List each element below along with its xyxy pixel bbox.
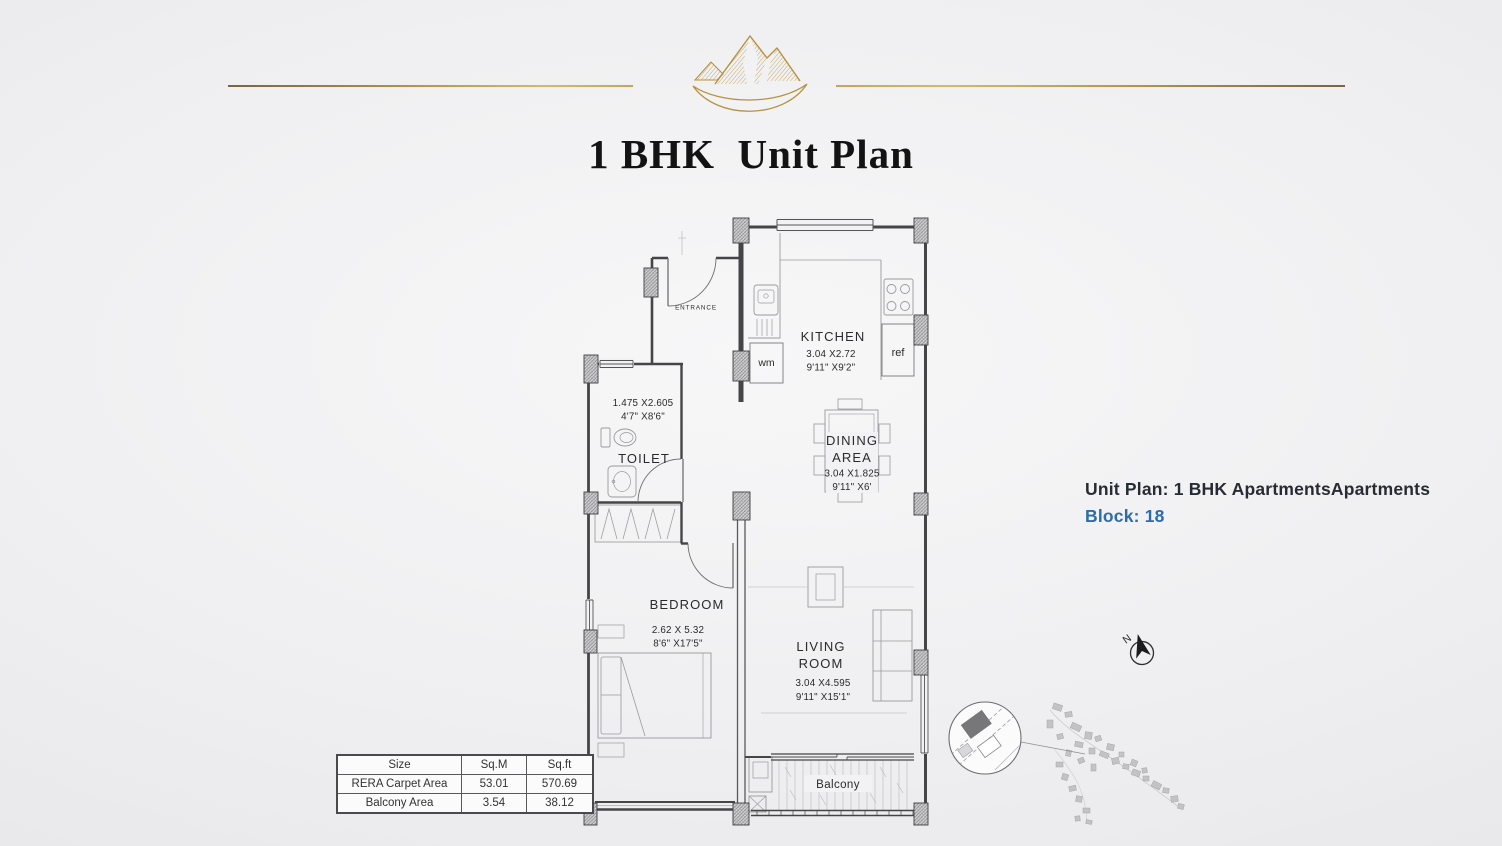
dining-label-1: DINING: [826, 433, 878, 448]
row-sqm: 3.54: [462, 794, 527, 814]
stove-hob: [884, 279, 913, 315]
north-label: N: [1121, 632, 1134, 646]
toilet-dim-m: 1.475 X2.605: [613, 398, 674, 409]
entrance-door: [668, 258, 716, 306]
sofa: [873, 610, 912, 701]
row-sqft: 38.12: [527, 794, 594, 814]
row-label: RERA Carpet Area: [337, 775, 462, 794]
living-label-1: LIVING: [796, 639, 845, 654]
kitchen-window: [777, 217, 873, 233]
table-header-row: Size Sq.M Sq.ft: [337, 755, 593, 775]
bedroom-door: [688, 543, 733, 588]
wall-columns: [584, 218, 928, 825]
kitchen-counter-left: [748, 229, 780, 338]
washbasin-fixture: [608, 466, 636, 497]
row-sqm: 53.01: [462, 775, 527, 794]
row-label: Balcony Area: [337, 794, 462, 814]
col-sqm: Sq.M: [462, 755, 527, 775]
living-dim-m: 3.04 X4.595: [795, 678, 850, 689]
bedroom-dim-m: 2.62 X 5.32: [652, 625, 704, 636]
wardrobe: [595, 505, 681, 542]
block-text: Block: 18: [1085, 503, 1430, 530]
service-shaft: [749, 757, 772, 812]
kitchen-label: KITCHEN: [801, 329, 866, 344]
walls-layer: [588, 227, 928, 817]
dining-dim-m: 3.04 X1.825: [824, 469, 879, 480]
refrigerator-label: ref: [892, 347, 906, 359]
toilet-window: [599, 358, 634, 369]
callout-circle: [949, 702, 1021, 774]
unit-plan-text: Unit Plan: 1 BHK ApartmentsApartments: [1085, 476, 1430, 503]
entrance-label: ENTRANCE: [675, 305, 717, 312]
site-location-map: [935, 690, 1195, 846]
col-sqft: Sq.ft: [527, 755, 594, 775]
bedroom-window: [584, 599, 595, 631]
header-divider-left: [228, 85, 633, 87]
wc-fixture: [601, 428, 636, 447]
table-row: RERA Carpet Area 53.01 570.69: [337, 775, 593, 794]
living-dim-ft: 9'11" X15'1": [796, 692, 851, 703]
row-sqft: 570.69: [527, 775, 594, 794]
kitchen-dim-ft: 9'11" X9'2": [807, 363, 856, 374]
kitchen-dim-m: 3.04 X2.72: [806, 349, 855, 360]
balcony-label: Balcony: [816, 779, 860, 791]
table-row: Balcony Area 3.54 38.12: [337, 794, 593, 814]
plan-labels: KITCHEN 3.04 X2.72 9'11" X9'2" wm ref DI…: [613, 305, 906, 793]
header-divider-right: [836, 85, 1345, 87]
mountain-logo-icon: [655, 18, 845, 123]
col-size: Size: [337, 755, 462, 775]
toilet-label: TOILET: [618, 451, 670, 466]
kitchen-sink: [754, 285, 778, 336]
washing-machine-label: wm: [757, 357, 775, 369]
living-window: [919, 674, 930, 754]
bedroom-dim-ft: 8'6" X17'5": [653, 639, 703, 650]
tv-console: [808, 567, 843, 607]
dining-label-2: AREA: [832, 450, 872, 465]
fixtures-layer: [595, 229, 914, 812]
floor-plan: KITCHEN 3.04 X2.72 9'11" X9'2" wm ref DI…: [575, 205, 955, 845]
bedroom-label: BEDROOM: [650, 597, 725, 612]
north-compass-icon: N: [1117, 626, 1165, 676]
location-cluster: [1047, 703, 1184, 825]
area-table: Size Sq.M Sq.ft RERA Carpet Area 53.01 5…: [336, 754, 594, 814]
threshold-mark: [678, 231, 686, 255]
unit-info: Unit Plan: 1 BHK ApartmentsApartments Bl…: [1085, 476, 1430, 530]
living-label-2: ROOM: [799, 656, 844, 671]
toilet-dim-ft: 4'7" X8'6": [621, 412, 665, 423]
dining-dim-ft: 9'11" X6': [832, 482, 871, 493]
page-title: 1 BHK Unit Plan: [0, 130, 1502, 178]
page-background: 1 BHK Unit Plan: [0, 0, 1502, 846]
